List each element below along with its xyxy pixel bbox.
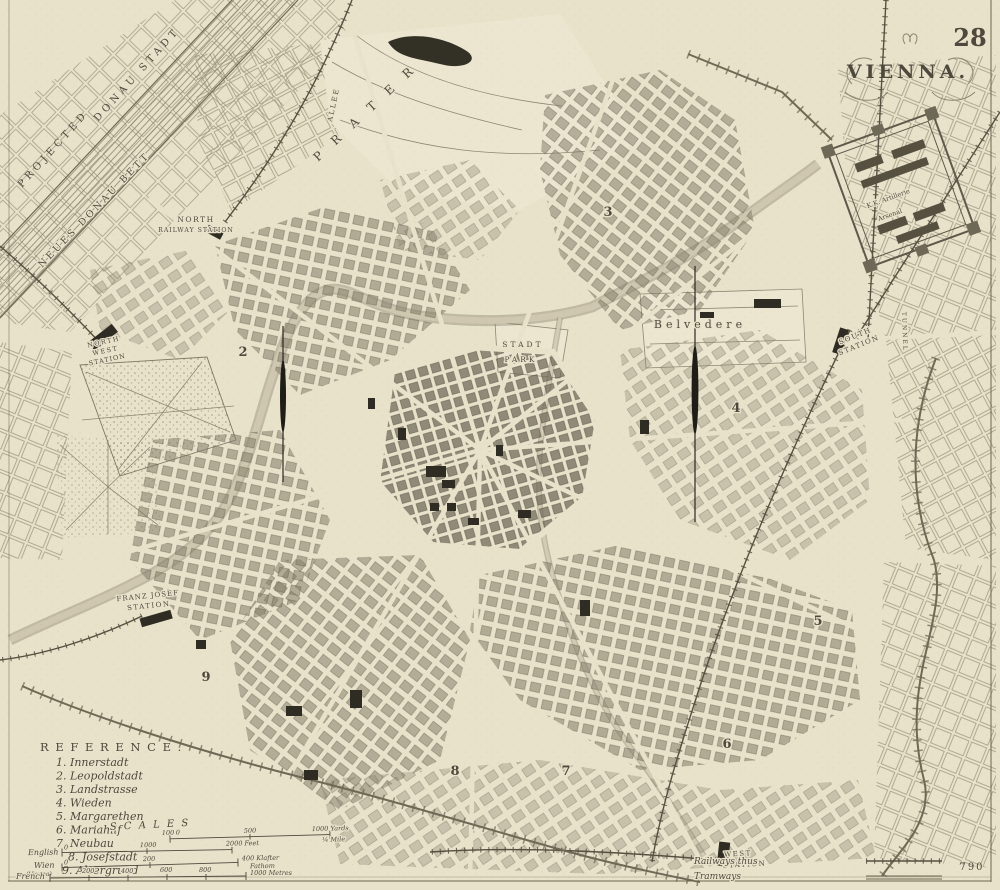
scale-yards-1000: 1000 Yards [312,824,350,833]
scale-yards-500: 500 [244,827,257,835]
scale-french-200: 200 [81,867,94,875]
scale-french-name: French [15,872,45,881]
scale-wien-name: Wien [34,861,55,870]
reference-title: R E F E R E N C E . [40,740,183,754]
tramways-key-label: Tramways [694,872,741,882]
scale-french-1000metres: 1000 Metres [250,869,293,877]
scale-french-400: 400 [120,867,133,875]
district-number-5: 5 [813,614,822,629]
scale-french-600: 600 [160,866,172,874]
district-number-4: 4 [731,401,740,416]
vienna-map-canvas: VIENNA. 28 790 NEUES DONAU BETT PROJECTE… [0,0,1000,890]
district-number-2: 2 [238,345,247,360]
scale-english-name: English [27,848,59,858]
scale-french-800: 800 [199,866,211,874]
scale-english-1000: 1000 [140,841,157,849]
district-number-6: 6 [722,737,731,752]
map-title: VIENNA. [846,61,969,83]
label-belvedere: Belvedere [654,318,746,331]
reference-item: 3. Landstrasse [56,783,138,796]
scale-english-2000: 2000 Feet [225,839,260,848]
reference-items: 1. Innerstadt 2. Leopoldstadt 3. Landstr… [55,756,144,877]
district-number-3: 3 [603,205,612,220]
district-number-9: 9 [201,670,210,685]
svg-text:RAILWAY STATION: RAILWAY STATION [158,227,234,234]
plate-number: 790 [959,862,984,873]
reference-item: 1. Innerstadt [56,756,129,769]
reference-item: 4. Wieden [55,797,112,810]
district-number-8: 8 [450,764,459,779]
scale-yards-100: 100 [162,829,175,837]
map-page: VIENNA. 28 790 NEUES DONAU BETT PROJECTE… [0,0,1000,890]
svg-text:NORTH: NORTH [177,215,214,224]
label-tunnel: TUNNEL [900,312,908,352]
scale-wien-0: 0 [64,858,68,866]
scale-english-0: 0 [64,843,68,851]
page-number: 28 [953,23,986,52]
scale-yards-quartermile: ¼ Mile [322,835,345,844]
reference-item: 2. Leopoldstadt [55,770,143,783]
railways-key-label: Railways thus [693,857,758,867]
scale-wien-200: 200 [142,855,156,863]
svg-text:PARK: PARK [504,355,537,364]
district-number-7: 7 [561,764,570,779]
scale-yards-0: 0 [176,829,180,837]
svg-text:STADT: STADT [502,340,543,349]
